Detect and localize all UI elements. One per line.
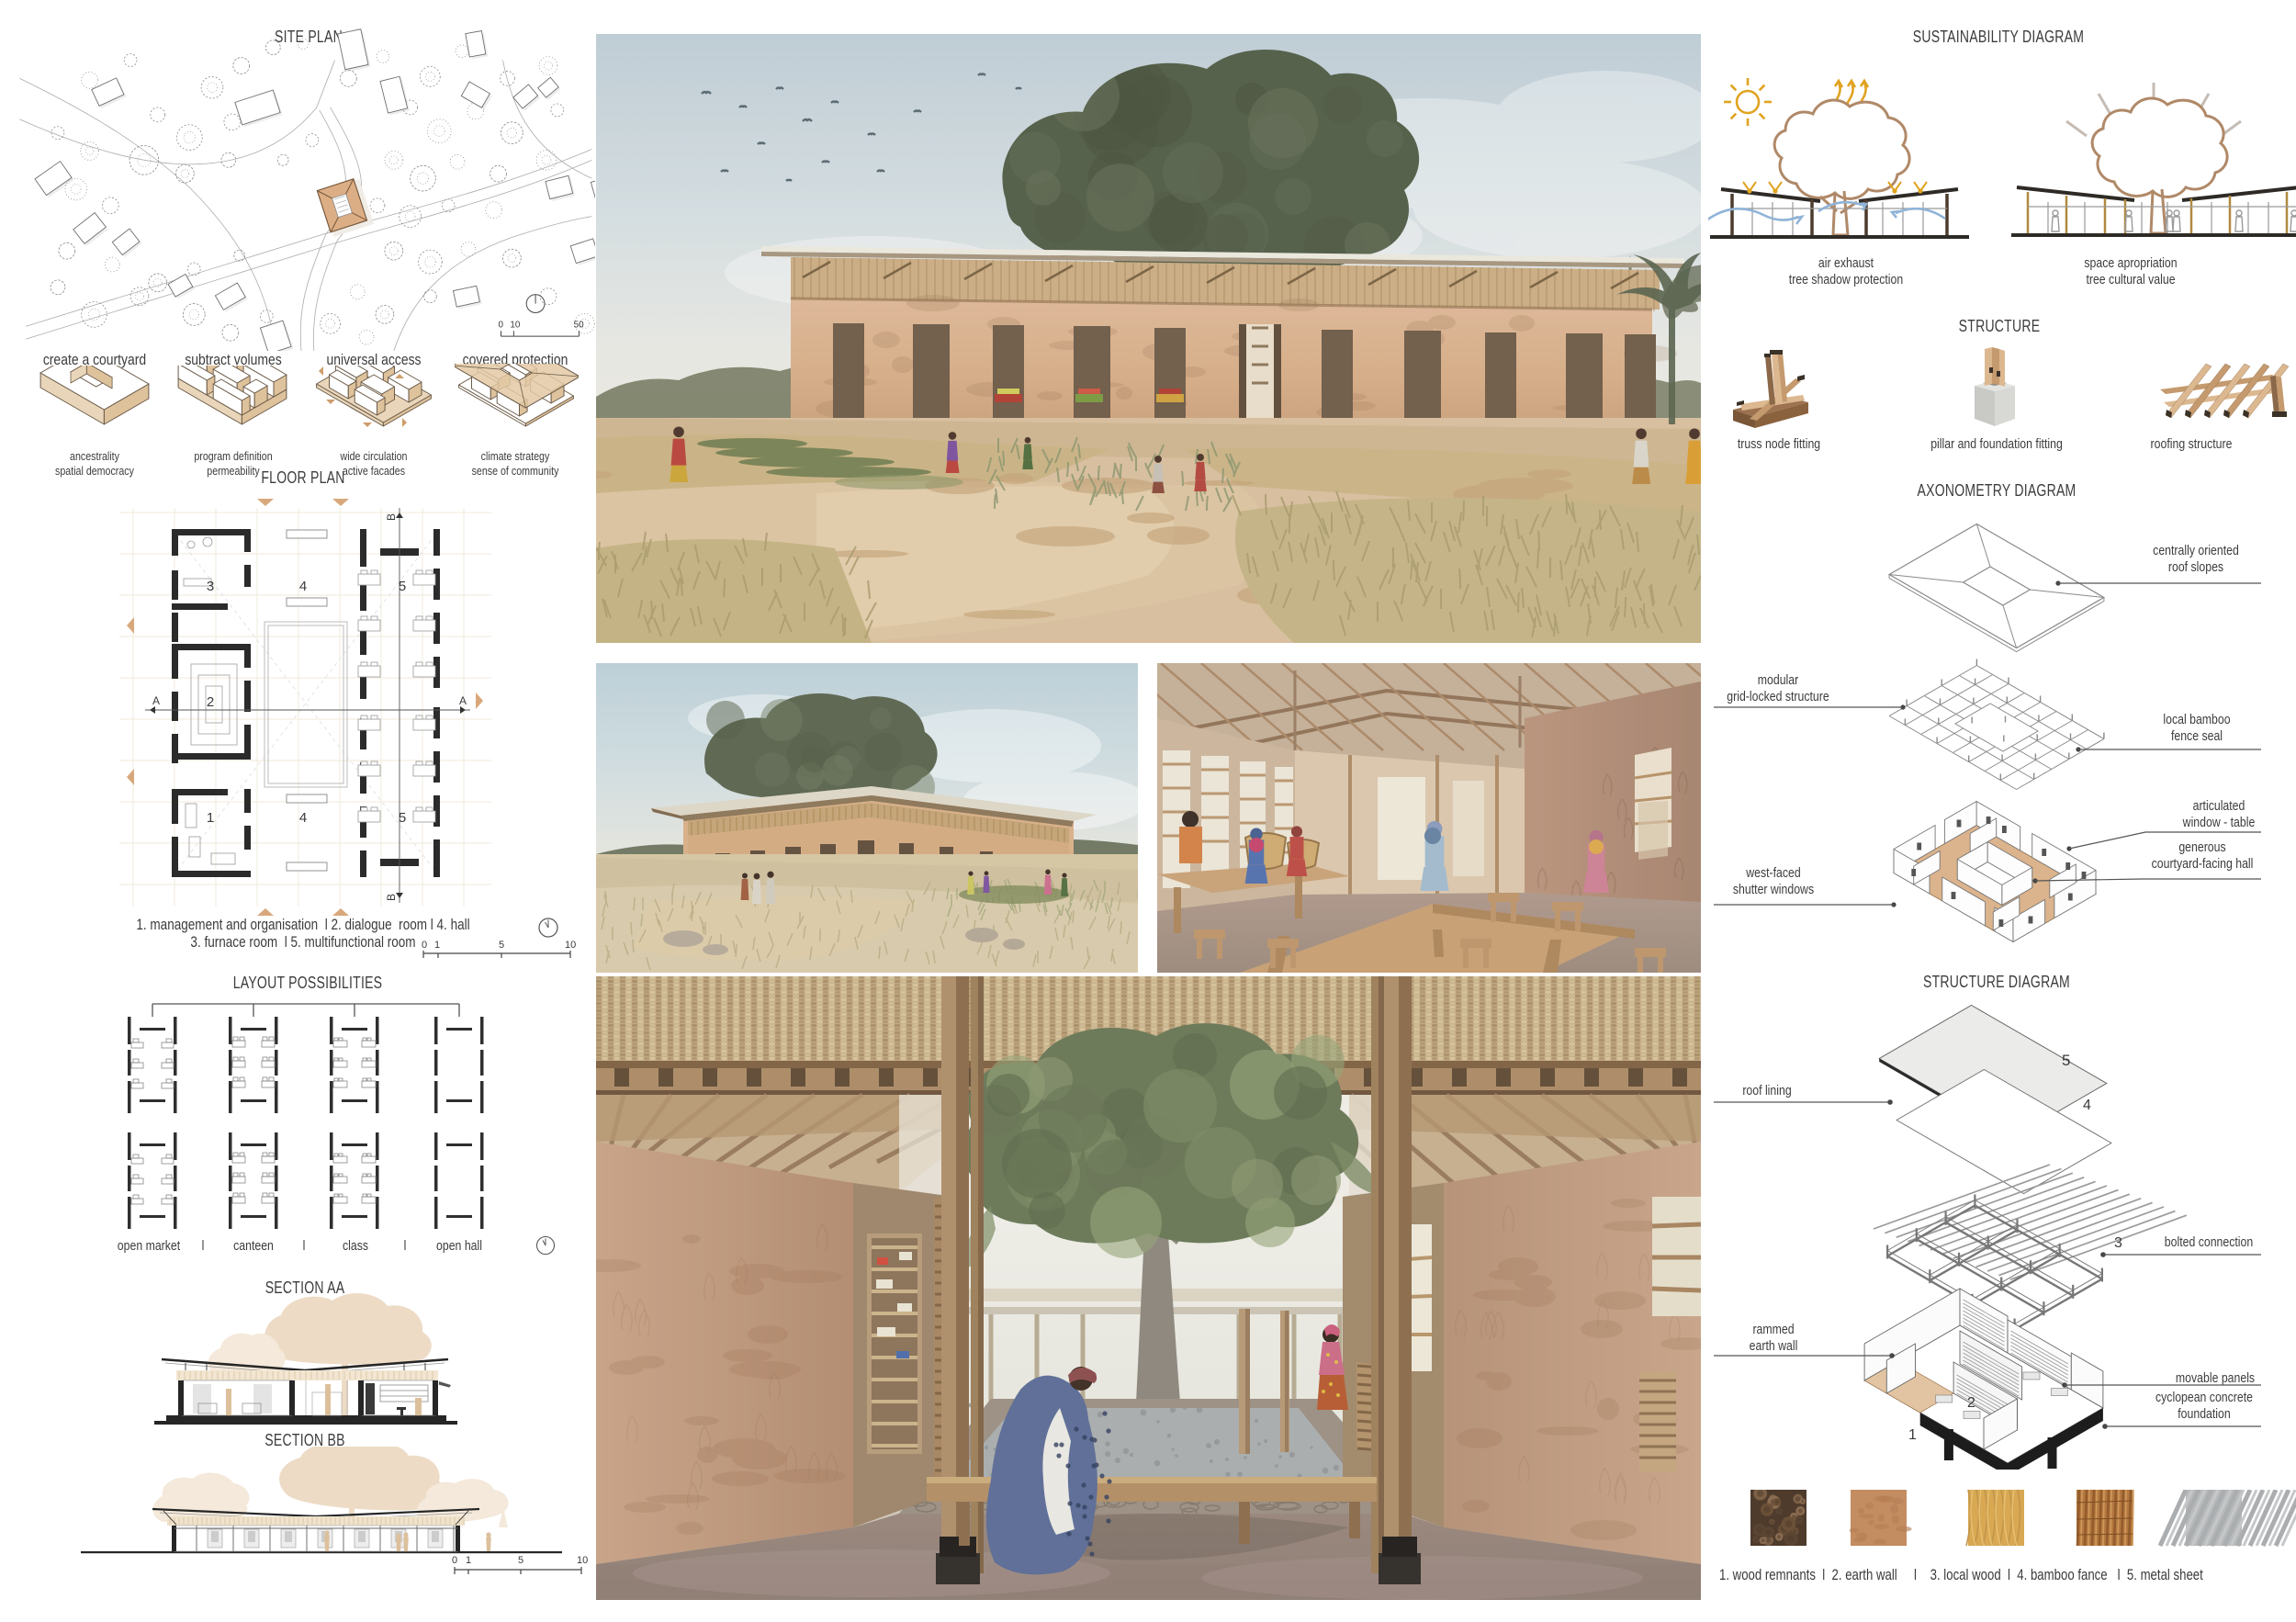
svg-text:10: 10 bbox=[565, 940, 576, 951]
svg-text:10: 10 bbox=[510, 320, 520, 330]
svg-text:2: 2 bbox=[207, 694, 214, 710]
svg-text:50: 50 bbox=[574, 320, 584, 330]
svg-text:5: 5 bbox=[399, 579, 406, 594]
svg-text:1: 1 bbox=[1908, 1427, 1917, 1443]
svg-text:0: 0 bbox=[499, 320, 504, 330]
svg-text:B: B bbox=[385, 894, 398, 901]
svg-text:3: 3 bbox=[2114, 1235, 2122, 1251]
svg-text:4: 4 bbox=[2083, 1098, 2091, 1113]
svg-text:10: 10 bbox=[577, 1555, 588, 1566]
svg-text:B: B bbox=[385, 513, 398, 521]
svg-text:2: 2 bbox=[1967, 1395, 1975, 1411]
svg-text:3: 3 bbox=[207, 579, 214, 594]
svg-text:4: 4 bbox=[299, 810, 307, 826]
svg-text:5: 5 bbox=[518, 1555, 523, 1566]
svg-text:4: 4 bbox=[299, 579, 307, 594]
svg-text:A: A bbox=[152, 694, 160, 707]
svg-text:0: 0 bbox=[422, 940, 427, 951]
svg-text:5: 5 bbox=[399, 810, 406, 826]
svg-text:0: 0 bbox=[452, 1555, 457, 1566]
svg-text:1: 1 bbox=[434, 940, 440, 951]
svg-text:5: 5 bbox=[499, 940, 504, 951]
svg-text:1: 1 bbox=[466, 1555, 471, 1566]
svg-text:5: 5 bbox=[2062, 1052, 2070, 1069]
svg-text:A: A bbox=[459, 694, 467, 707]
svg-text:1: 1 bbox=[207, 810, 214, 826]
